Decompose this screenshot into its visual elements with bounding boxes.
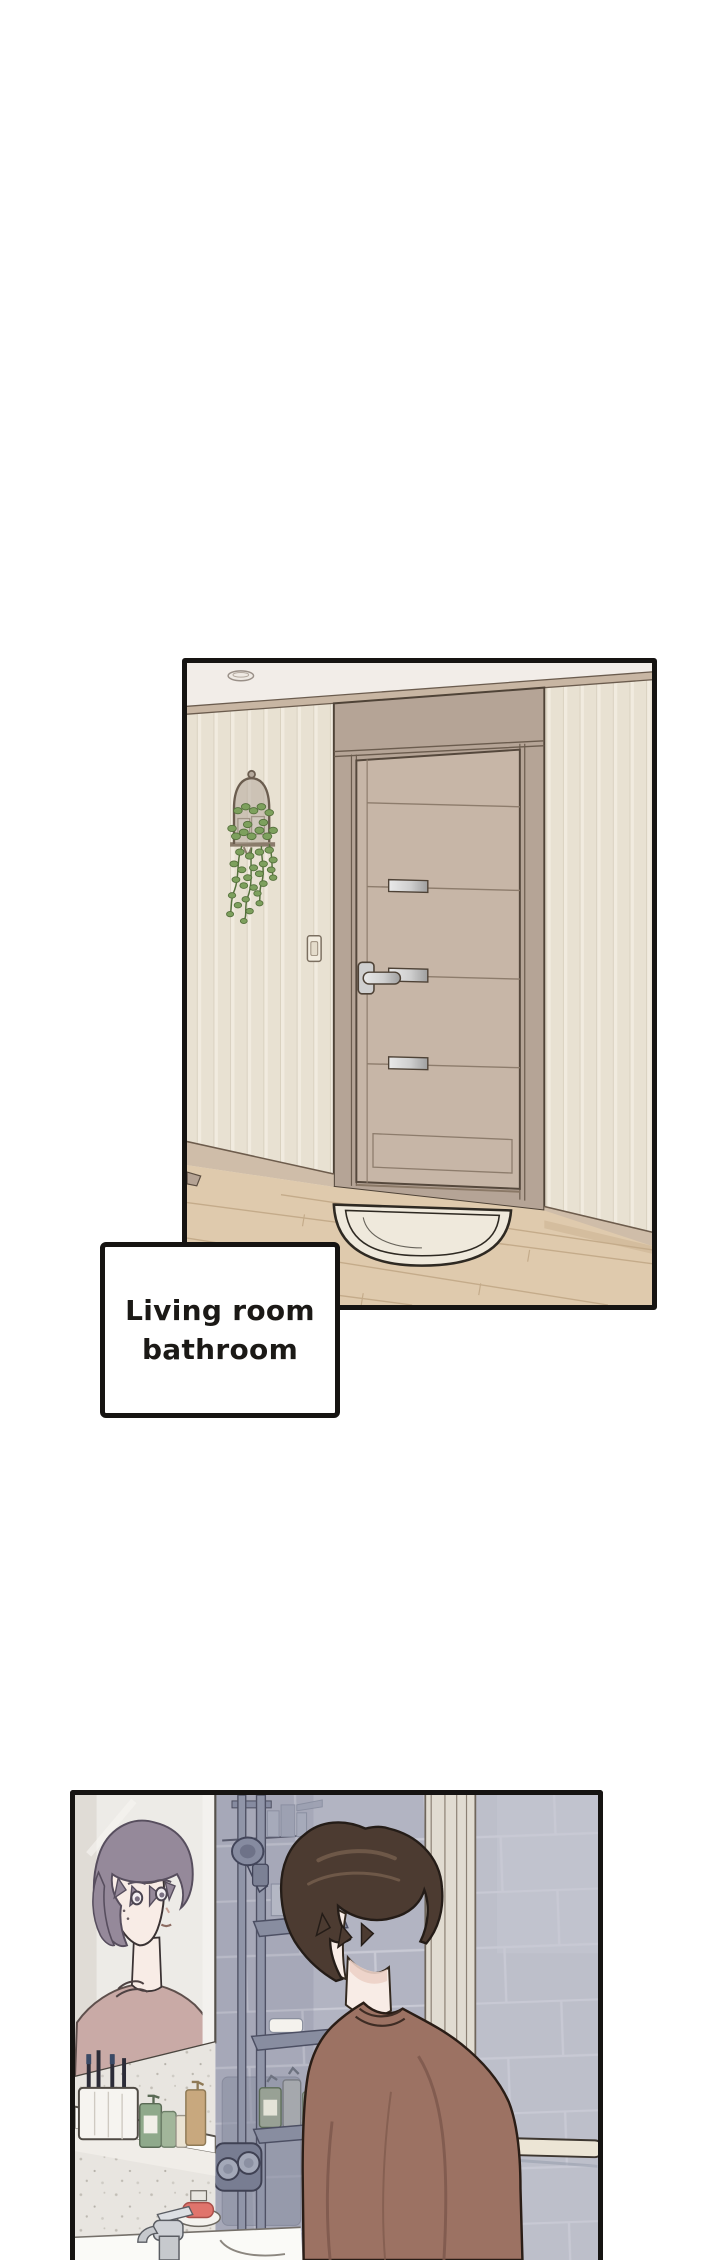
hallway-panel <box>182 658 657 1310</box>
hallway-scene <box>187 663 652 1305</box>
caption-box: Living room bathroom <box>100 1242 340 1418</box>
caption-line-2: bathroom <box>142 1332 298 1368</box>
bathroom-panel <box>70 1790 603 2260</box>
caption-line-1: Living room <box>125 1293 315 1329</box>
mirror <box>75 1795 215 2082</box>
light-switch <box>307 936 321 962</box>
shower-valve <box>214 2143 261 2190</box>
ceiling-lamp <box>228 671 253 681</box>
rail-slider <box>253 1864 269 1886</box>
bathroom-door <box>356 750 519 1189</box>
bathroom-scene <box>75 1795 598 2260</box>
comic-page: Living room bathroom <box>0 0 720 2260</box>
